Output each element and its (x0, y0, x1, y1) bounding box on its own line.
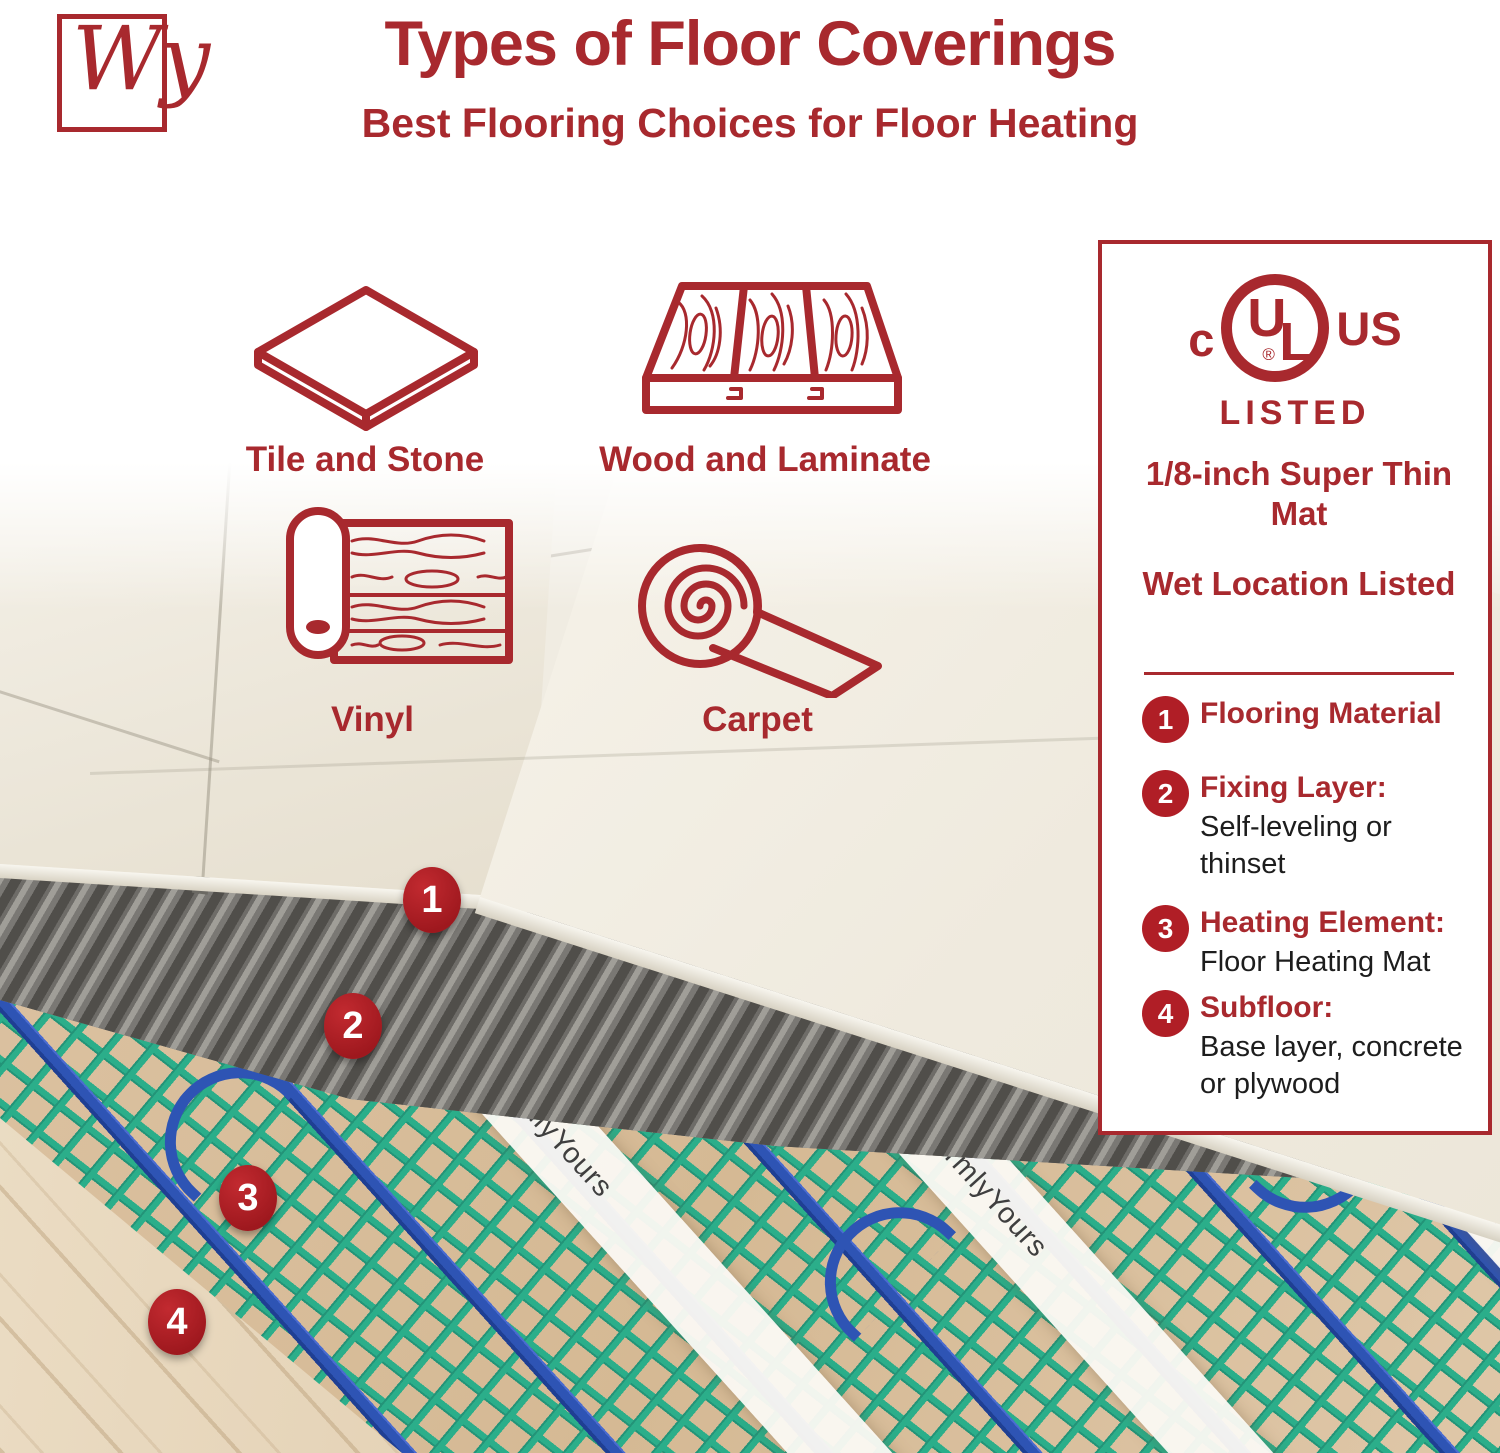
carpet-label: Carpet (610, 700, 905, 740)
page-subtitle: Best Flooring Choices for Floor Heating (0, 100, 1500, 147)
layer-desc: Base layer, concrete or plywood (1200, 1029, 1472, 1103)
ul-us-mark: US (1336, 301, 1401, 356)
layer-badge-3: 3 (1142, 905, 1189, 952)
ul-circle: U L ® (1221, 274, 1329, 382)
ul-c-mark: c (1188, 312, 1214, 367)
ul-listed-mark: c U L ® US (1102, 274, 1488, 382)
layer-desc: Self-leveling or thinset (1200, 809, 1472, 883)
wood-laminate-label: Wood and Laminate (580, 440, 950, 480)
layer-title: Subfloor: (1200, 990, 1472, 1026)
panel-divider (1144, 672, 1454, 675)
spec-panel: c U L ® US LISTED 1/8-inch Super Thin Ma… (1098, 240, 1492, 1135)
infographic: Wy Types of Floor Coverings Best Floorin… (0, 0, 1500, 1453)
feature-thin-mat: 1/8-inch Super Thin Mat (1139, 454, 1459, 533)
layer-desc: Floor Heating Mat (1200, 944, 1472, 981)
layer-badge-2: 2 (1142, 770, 1189, 817)
page-title: Types of Floor Coverings (0, 8, 1500, 80)
layer-title: Fixing Layer: (1200, 770, 1472, 806)
tile-stone-icon (250, 282, 482, 440)
ul-listed-text: LISTED (1102, 394, 1488, 433)
vinyl-icon (282, 503, 517, 668)
layer-badge-4: 4 (1142, 990, 1189, 1037)
layer-item-4: 4 Subfloor: Base layer, concrete or plyw… (1142, 990, 1472, 1103)
marker-4: 4 (148, 1289, 206, 1355)
marker-2: 2 (324, 993, 382, 1059)
marker-3: 3 (219, 1165, 277, 1231)
marker-1: 1 (403, 867, 461, 933)
feature-wet-location: Wet Location Listed (1139, 564, 1459, 604)
registered-symbol: ® (1262, 345, 1275, 365)
tile-seam (0, 684, 220, 763)
layer-item-2: 2 Fixing Layer: Self-leveling or thinset (1142, 770, 1472, 883)
layer-title: Heating Element: (1200, 905, 1472, 941)
layer-title: Flooring Material (1200, 696, 1472, 732)
tile-stone-label: Tile and Stone (215, 440, 515, 480)
layer-item-1: 1 Flooring Material (1142, 696, 1472, 732)
layer-item-3: 3 Heating Element: Floor Heating Mat (1142, 905, 1472, 981)
layer-badge-1: 1 (1142, 696, 1189, 743)
carpet-icon (612, 526, 912, 698)
wood-laminate-icon (612, 276, 912, 438)
vinyl-label: Vinyl (240, 700, 505, 740)
